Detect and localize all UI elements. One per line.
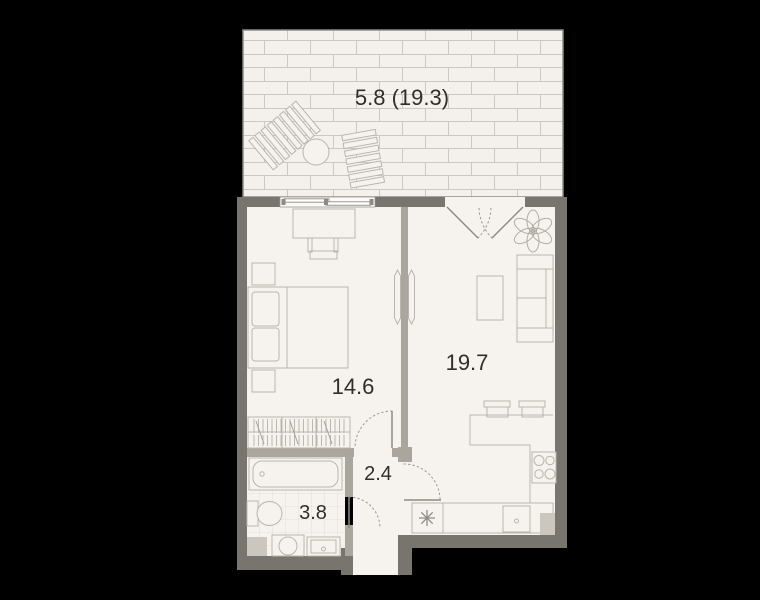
sliding-panel [284,199,329,202]
wall-right [555,197,567,548]
wall-bottom-right [398,535,567,548]
window-stop [324,199,328,205]
bedroom-doorway-floor [354,448,392,457]
hallway-area-label: 2.4 [364,463,392,485]
bathroom-area-label: 3.8 [299,502,327,524]
duct-shaft [247,537,267,556]
partition-bedroom-living [401,207,408,462]
living-area-label: 19.7 [446,350,489,375]
toilet-icon [247,501,282,526]
double-bed-icon [248,287,348,368]
bedroom-area-label: 14.6 [332,374,375,399]
wardrobe-icon [248,417,350,448]
terrace-area-label: 5.8 (19.3) [355,85,449,110]
tv-icon [409,270,415,324]
bathtub-icon [249,458,342,490]
living-doorway-floor [401,462,408,503]
stove-icon [532,452,556,483]
round-table-icon [303,139,329,165]
kitchen-counter-icon [412,503,553,533]
window-stop [282,199,286,205]
sliding-panel [326,202,371,205]
partition-bedroom-hall [392,448,401,457]
tv-icon [395,270,401,324]
terrace: 5.8 (19.3) [243,30,563,197]
hallway: 2.4 [364,463,392,485]
partition-bedroom-bathroom [247,448,354,457]
window-stop [370,199,374,205]
french-door-opening [445,197,525,207]
sofa-icon [517,255,553,342]
duct-shaft [540,513,555,535]
bathroom-sink-icon [307,537,340,556]
washing-machine-icon [272,535,304,556]
wall-bottom-left [237,556,353,570]
partition-bathroom-hall-lower [345,525,353,556]
floor-plan: 5.8 (19.3) [0,0,760,600]
wall-entrance-right-stub [398,535,412,575]
partition-bathroom-hall-upper [345,457,353,497]
fridge-symbol-icon [419,510,435,526]
floor-plan-canvas: 5.8 (19.3) [0,0,760,600]
wall-left [237,197,247,570]
